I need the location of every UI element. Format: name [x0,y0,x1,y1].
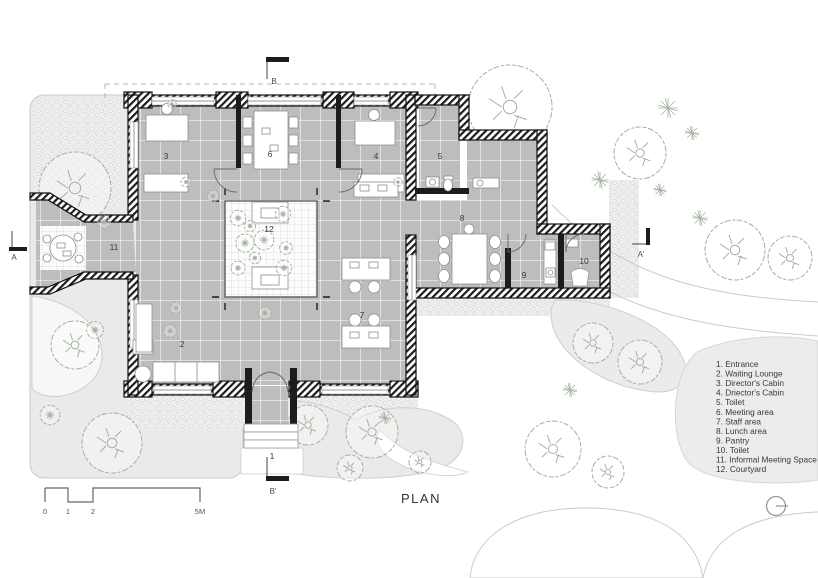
room-6-furniture [243,111,298,169]
palm-icon [592,172,609,189]
section-label-b-prime: B' [270,487,277,496]
scale-label-2: 2 [91,507,95,516]
legend-item-6: 6. Meeting area [716,407,774,417]
room-label-7: 7 [360,310,365,320]
scale-label-1: 1 [66,507,70,516]
scale-bar: 0 1 2 5M [43,488,205,516]
legend-item-5: 5. Toilet [716,397,745,407]
legend-item-1: 1. Entrance [716,359,759,369]
room-label-8: 8 [460,213,465,223]
tree-icon [614,127,666,179]
tree-icon [618,340,662,384]
room-label-1: 1 [270,451,275,461]
section-marker-a: A [9,231,27,262]
room-label-4: 4 [374,151,379,161]
section-marker-b: B [266,57,289,86]
palm-icon [379,412,392,425]
legend-item-7: 7. Staff area [716,416,761,426]
entrance-steps [244,424,298,448]
section-label-a: A [11,253,17,262]
section-label-a-prime: A' [638,250,645,259]
palm-icon [654,184,667,197]
legend-item-12: 12. Courtyard [716,464,767,474]
room-8-upper-floor [467,140,537,202]
shrub-icon [40,405,60,425]
path-edge [703,512,818,578]
pebble-paving [609,180,639,298]
shrub-icon [87,322,104,339]
room-9-furniture [544,240,556,284]
tree-icon [573,323,613,363]
room-label-3: 3 [164,151,169,161]
room-5-floor [419,104,460,190]
north-indicator-icon [767,497,789,516]
legend-item-8: 8. Lunch area [716,426,767,436]
tree-icon [705,220,765,280]
room-label-2: 2 [180,339,185,349]
legend-item-11: 11. Informal Meeting Space [716,455,817,465]
scale-label-5m: 5M [195,507,205,516]
palm-icon [563,383,577,397]
section-label-b: B [271,77,276,86]
tree-icon [409,451,431,473]
palm-icon [692,210,707,225]
courtyard [212,188,330,310]
tree-icon [525,421,581,477]
room-label-9: 9 [522,270,527,280]
room-label-11: 11 [110,242,119,252]
room-label-12: 12 [264,224,274,234]
legend-item-3: 3. Director's Cabin [716,378,784,388]
legend-item-2: 2. Waiting Lounge [716,369,783,379]
tree-icon [768,236,812,280]
scale-label-0: 0 [43,507,47,516]
tree-icon [82,413,142,473]
palm-icon [658,98,678,118]
legend-item-4: 4. Driector's Cabin [716,388,784,398]
tree-icon [337,455,363,481]
legend-item-10: 10. Toilet [716,445,750,455]
plan-title: PLAN [401,491,441,506]
vestibule-floor [252,386,288,426]
tree-icon [592,456,624,488]
floor-plan-drawing: 1 2 3 4 5 6 7 8 9 10 11 12 A A' B B' [0,0,818,578]
tree-icon [346,406,398,458]
lawn-outline [470,508,703,578]
room-label-6: 6 [268,149,273,159]
palm-icon [685,126,699,140]
room-label-5: 5 [438,151,443,161]
room-label-10: 10 [579,256,589,266]
legend-item-9: 9. Pantry [716,435,750,445]
